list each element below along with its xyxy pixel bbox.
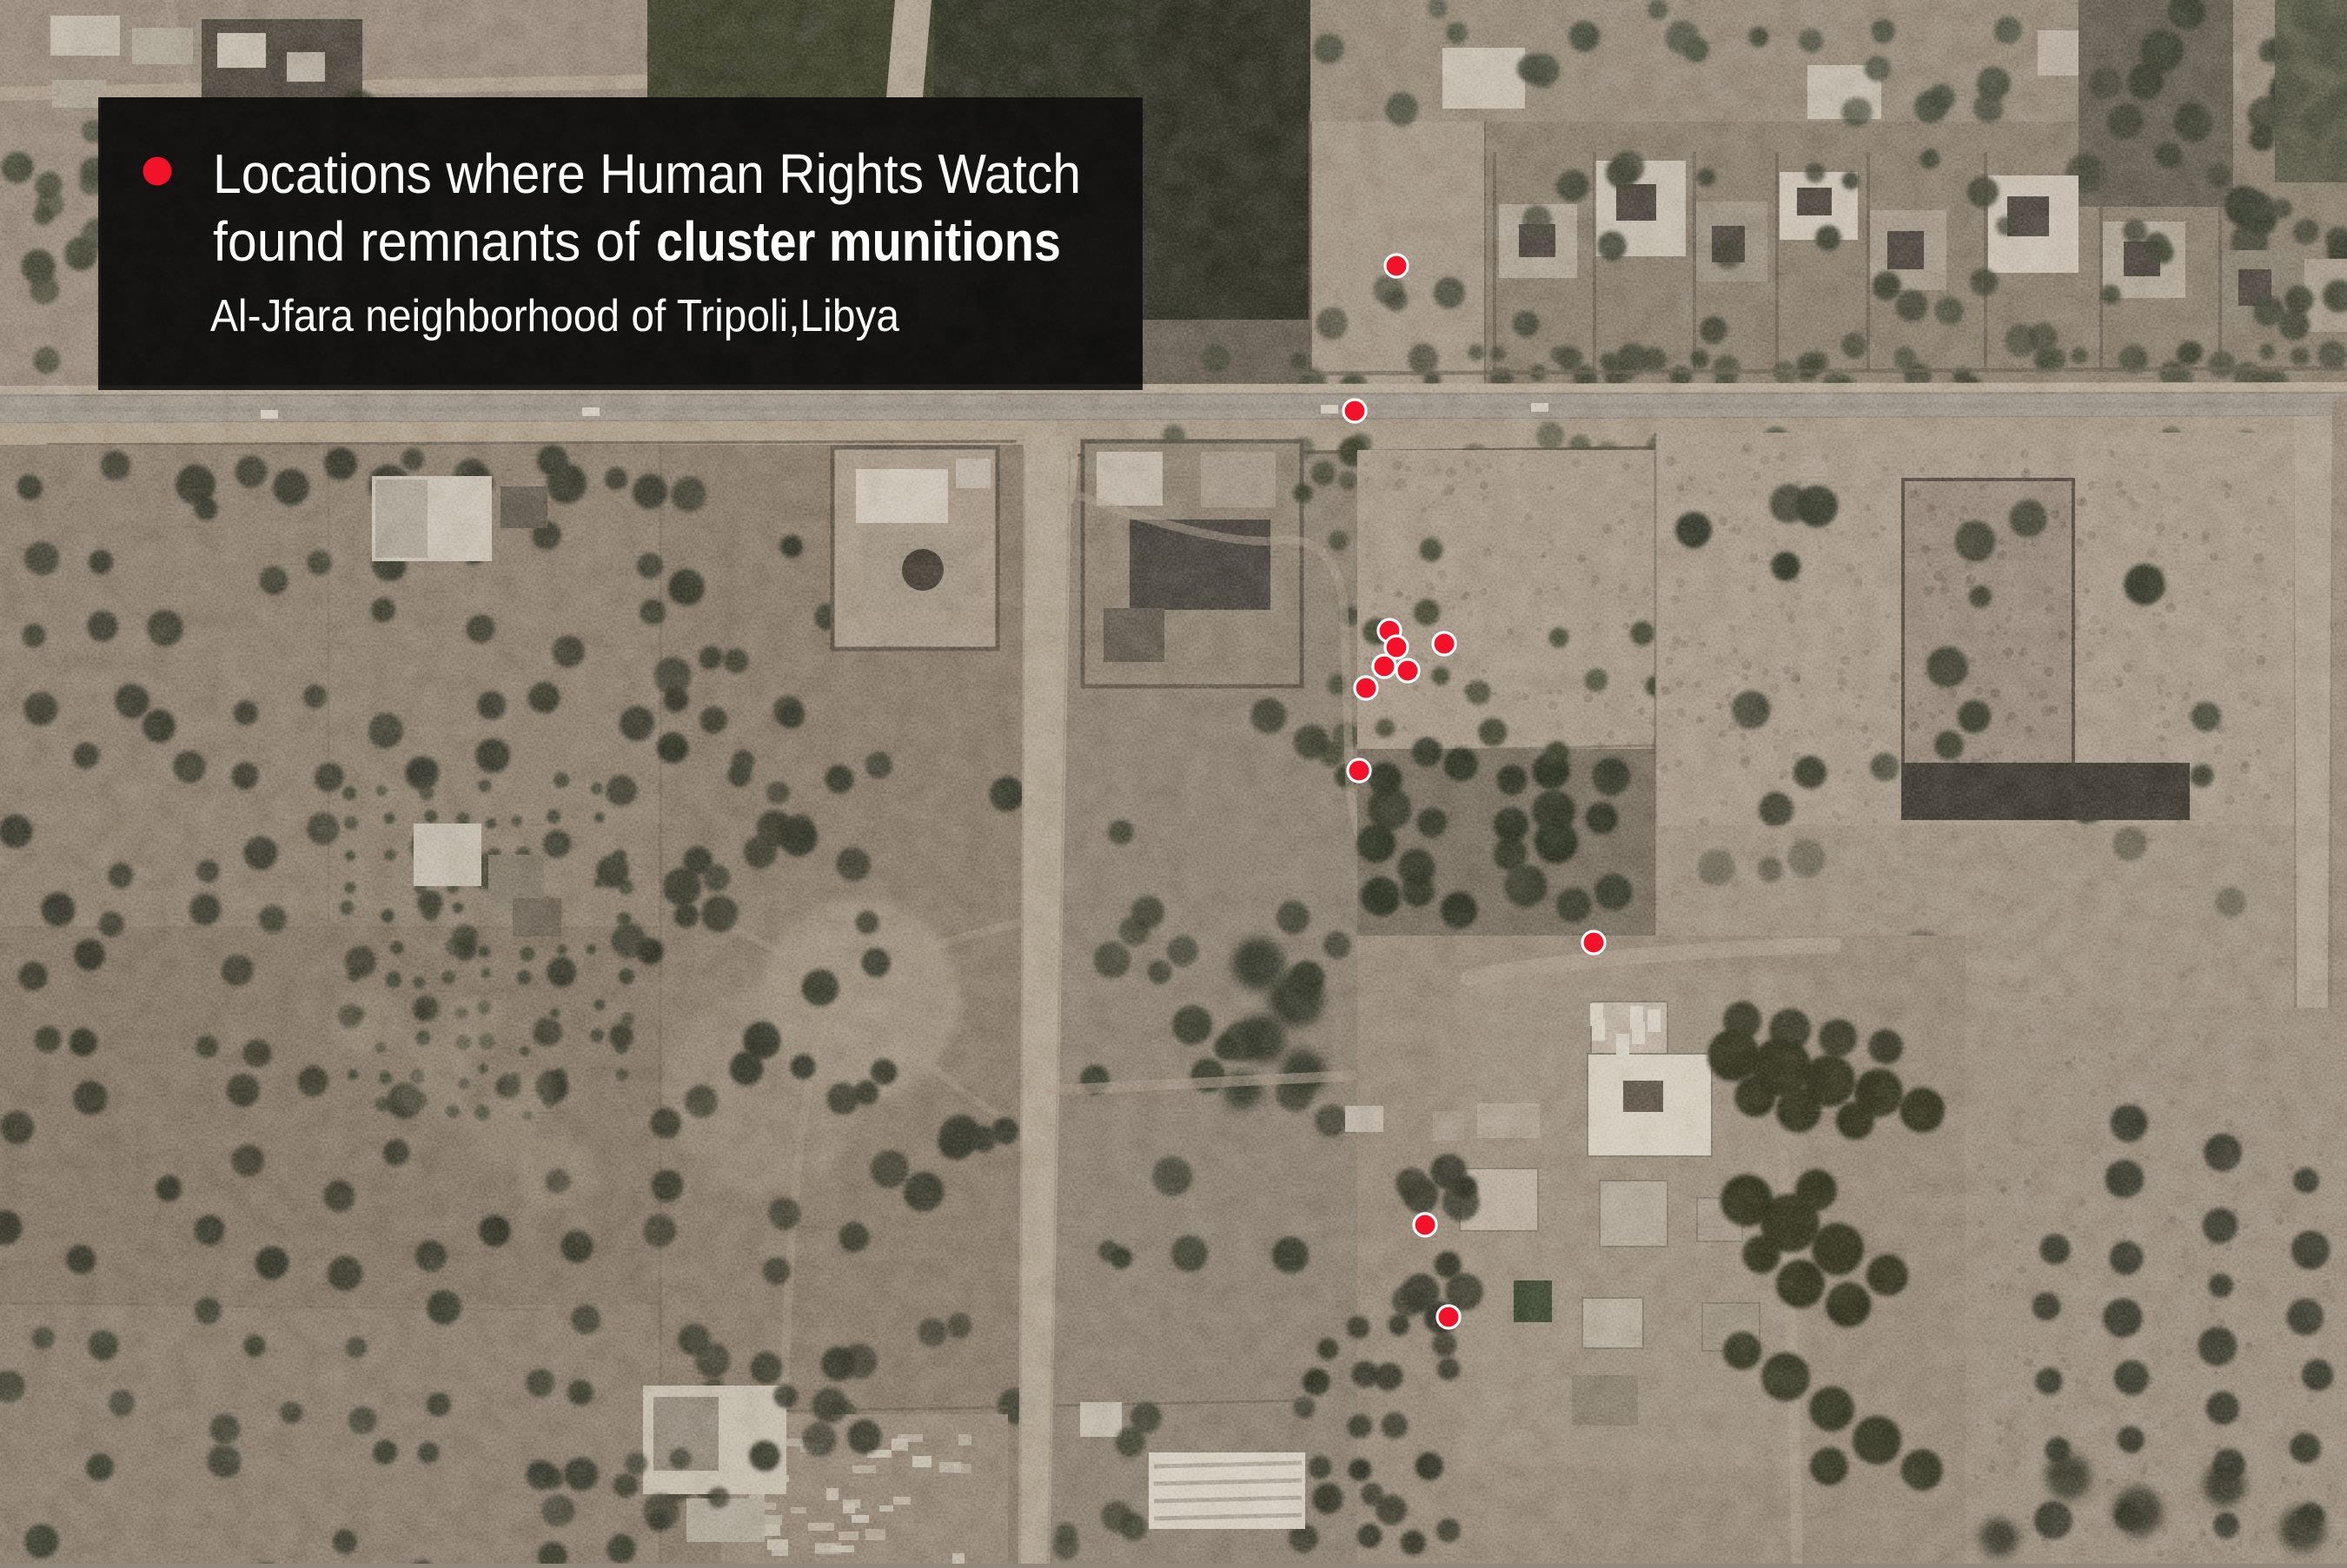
svg-text:Locations where Human Rights W: Locations where Human Rights Watch bbox=[213, 142, 1081, 205]
svg-text:cluster munitions: cluster munitions bbox=[656, 210, 1061, 273]
svg-text:found remnants of: found remnants of bbox=[213, 210, 640, 273]
svg-text:Al-Jfara neighborhood of Tripo: Al-Jfara neighborhood of Tripoli,Libya bbox=[210, 291, 899, 341]
